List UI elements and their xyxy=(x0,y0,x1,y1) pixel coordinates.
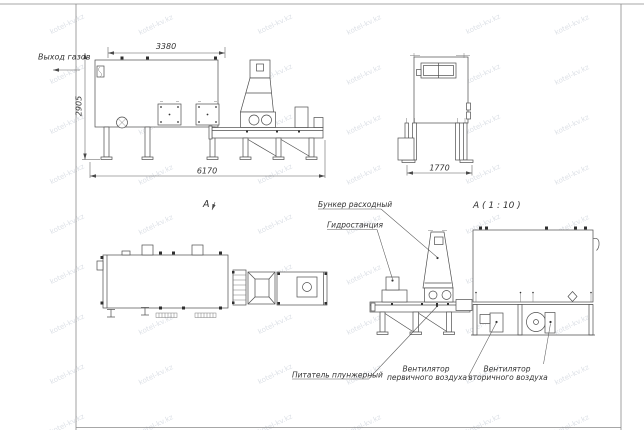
hatch-1 xyxy=(158,102,181,126)
trough-frame xyxy=(240,138,317,160)
gas-outlet-label: Выход газов xyxy=(38,53,91,62)
dim-1770: 1770 xyxy=(429,164,449,173)
fan-secondary-label-2: вторичного воздуха xyxy=(468,373,548,382)
drawing-canvas: kotel-kv.kzkotel-kv.kzkotel-kv.kzkotel-k… xyxy=(0,0,644,430)
feeder-plan xyxy=(232,270,327,305)
view-a-marker: А xyxy=(202,199,215,210)
boiler-plan-body xyxy=(103,255,228,308)
detail-trough xyxy=(370,302,470,312)
view-a-letter: А xyxy=(202,199,210,210)
body-supports xyxy=(101,127,218,160)
foot-symbols xyxy=(107,308,149,318)
view-detail-a: А ( 1 : 10 ) xyxy=(370,201,599,335)
callout-hydro-station: Гидростанция xyxy=(327,221,393,280)
detail-a-title: А ( 1 : 10 ) xyxy=(472,201,521,211)
rear-duct xyxy=(398,138,414,160)
hydro-label: Гидростанция xyxy=(327,221,384,230)
secondary-air-fan xyxy=(527,313,556,334)
hatch-2 xyxy=(196,102,219,126)
feed-hopper-side xyxy=(241,60,276,128)
view-plan xyxy=(97,245,327,318)
dimension-top-width: 3380 xyxy=(108,42,225,58)
primary-air-fan xyxy=(480,313,503,332)
dim-2905: 2905 xyxy=(75,96,84,116)
top-hatch-end xyxy=(417,63,457,78)
hopper-label: Бункер расходный xyxy=(318,200,392,209)
lifting-hook-icon xyxy=(594,238,600,250)
dim-3380: 3380 xyxy=(156,42,176,51)
flange-port xyxy=(117,117,128,128)
dimension-end-width: 1770 xyxy=(407,164,472,176)
hydro-station xyxy=(382,277,407,302)
view-side-elevation xyxy=(95,57,323,160)
view-end-elevation xyxy=(398,53,473,163)
grate-strips xyxy=(156,313,216,318)
gas-outlet-callout: Выход газов xyxy=(38,53,91,71)
fan-primary-label-2: первичного воздуха xyxy=(387,373,467,382)
detail-trough-frame xyxy=(377,312,455,335)
technical-drawing: 3380 2905 6170 Выход газов xyxy=(0,0,644,430)
detail-hopper xyxy=(423,231,453,289)
dim-6170: 6170 xyxy=(197,167,217,176)
detail-boiler-body xyxy=(473,227,599,303)
